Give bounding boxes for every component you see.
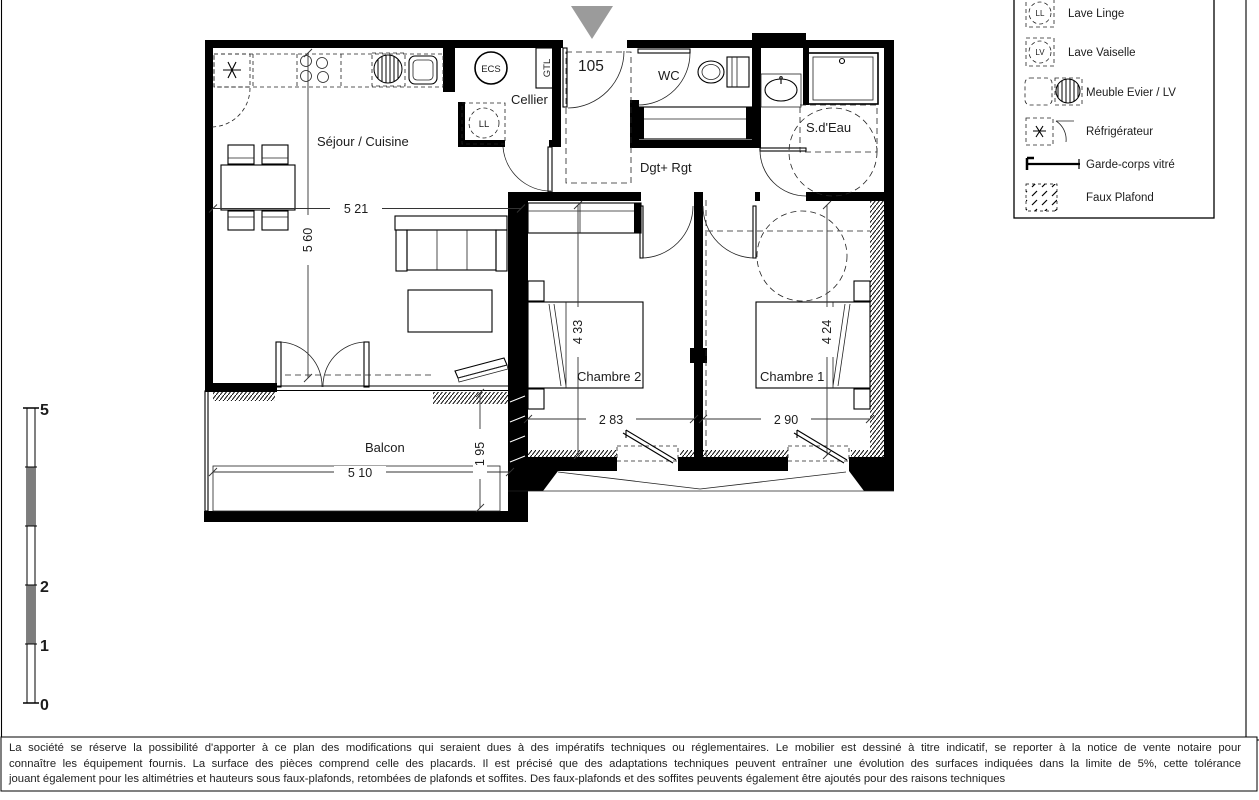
room-label-dgt: Dgt+ Rgt — [640, 160, 692, 175]
shelf-unit — [638, 107, 752, 139]
scale-label-5: 5 — [40, 402, 49, 419]
toilet-icon — [698, 57, 749, 87]
legend-label: Meuble Evier / LV — [1086, 87, 1176, 99]
dimension-sejour-width: 5 21 — [344, 202, 368, 216]
refrigerator-icon — [211, 54, 250, 127]
scale-label-0: 0 — [40, 697, 49, 714]
balcony — [205, 386, 508, 511]
dining-table — [221, 145, 295, 230]
room-label-sejour: Séjour / Cuisine — [317, 134, 409, 149]
bedside-table — [528, 389, 544, 409]
room-label-balcon: Balcon — [365, 440, 405, 455]
scale-bar: 5 2 1 0 — [23, 402, 49, 714]
svg-text:LL: LL — [1036, 9, 1045, 18]
sink-icon — [372, 53, 437, 86]
tv — [455, 358, 508, 382]
legend-label: Lave Linge — [1068, 8, 1124, 20]
disclaimer-line-2: connaître les équipement fournis. La sur… — [9, 757, 1241, 773]
dimension-chambre2-height: 4 33 — [571, 320, 585, 344]
dimension-chambre2-width: 2 83 — [599, 413, 623, 427]
dimension-chambre1-height: 4 24 — [820, 320, 834, 344]
window — [788, 430, 849, 463]
room-label-chambre1: Chambre 1 — [760, 369, 824, 384]
room-label-cellier: Cellier — [511, 92, 549, 107]
entrance-arrow-icon — [571, 6, 613, 39]
dimension-balcon-depth: 1 95 — [473, 442, 487, 466]
floor-plan-drawing: ECS GTL LL — [0, 0, 1259, 800]
room-label-chambre2: Chambre 2 — [577, 369, 641, 384]
legend-label: Réfrigérateur — [1086, 126, 1153, 138]
apartment-number: 105 — [578, 58, 604, 75]
dimension-chambre1-width: 2 90 — [774, 413, 798, 427]
walls — [204, 33, 894, 522]
shower-icon — [808, 53, 878, 104]
dimension-sejour-height: 5 60 — [301, 228, 315, 252]
closet — [528, 203, 641, 233]
legend-label: Lave Vaiselle — [1068, 47, 1136, 59]
legend: LL Lave Linge LV Lave Vaiselle Meuble Ev… — [1014, 0, 1214, 218]
ll-label: LL — [479, 119, 490, 130]
legend-label: Garde-corps vitré — [1086, 159, 1175, 171]
window — [617, 430, 678, 463]
scale-label-2: 2 — [40, 579, 49, 596]
scale-label-1: 1 — [40, 638, 49, 655]
dimension-balcon-width: 5 10 — [348, 466, 372, 480]
disclaimer-line-1: La société se réserve la possibilité d'a… — [9, 741, 1241, 757]
turning-circle — [757, 211, 847, 301]
room-label-sdeau: S.d'Eau — [806, 120, 851, 135]
dashed-zones — [285, 52, 870, 458]
hob-icon — [301, 56, 329, 83]
room-labels: 105 Séjour / Cuisine Cellier WC S.d'Eau … — [317, 58, 851, 455]
floor-plan-page: ECS GTL LL — [0, 0, 1259, 800]
bedside-table — [854, 281, 870, 301]
svg-text:LV: LV — [1035, 48, 1045, 57]
kitchen-counter — [211, 53, 443, 127]
bedside-table — [528, 281, 544, 301]
faux-plafond-icon — [1026, 184, 1057, 211]
coffee-table — [408, 290, 492, 332]
room-label-wc: WC — [658, 68, 680, 83]
ecs-label: ECS — [481, 64, 501, 75]
washbasin-icon — [761, 74, 801, 107]
disclaimer-line-3: jouant également pour les altimétries et… — [9, 772, 1241, 788]
legend-label: Faux Plafond — [1086, 192, 1154, 204]
sofa — [395, 216, 507, 271]
bedside-table — [854, 389, 870, 409]
gtl-label: GTL — [542, 59, 553, 77]
disclaimer: La société se réserve la possibilité d'a… — [9, 741, 1241, 788]
